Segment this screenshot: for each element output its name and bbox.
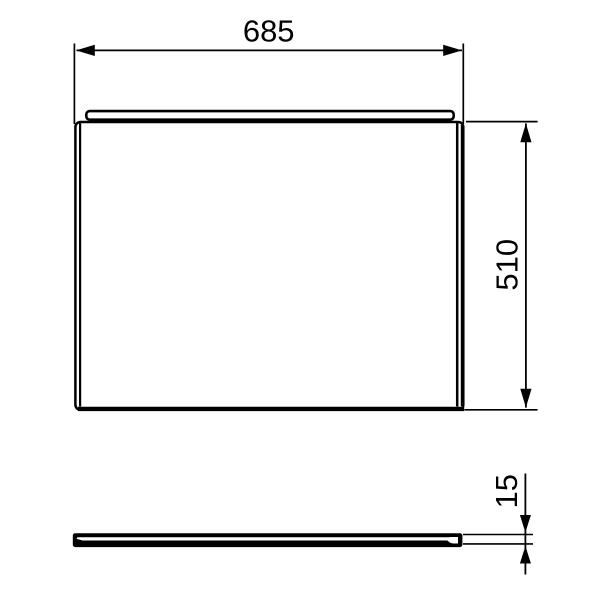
svg-text:685: 685 xyxy=(243,13,295,48)
svg-text:510: 510 xyxy=(490,239,525,291)
svg-text:15: 15 xyxy=(489,474,524,508)
